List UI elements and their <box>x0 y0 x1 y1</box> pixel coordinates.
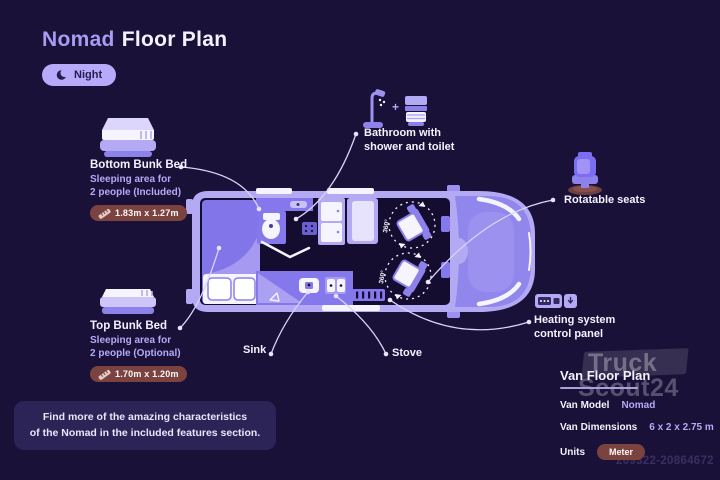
bottom-bunk-dimensions-badge: 1.83m x 1.27m <box>90 205 187 221</box>
bottom-bunk-sub1: Sleeping area for <box>90 174 171 185</box>
ruler-icon <box>98 369 111 380</box>
control-panel-icon <box>534 292 578 310</box>
bottom-bunk-dimensions: 1.83m x 1.27m <box>115 208 179 218</box>
heating-line1: Heating system <box>534 314 615 326</box>
swivel-seat-icon <box>560 150 610 196</box>
page-title-model: Nomad <box>42 28 115 51</box>
heating-line2: control panel <box>534 328 603 340</box>
page-title-rest: Floor Plan <box>122 28 228 51</box>
spec-row-dimensions: Van Dimensions 6 x 2 x 2.75 m <box>560 422 710 433</box>
cab-area <box>450 196 531 307</box>
heater-strip <box>352 289 385 301</box>
bottom-bunk-sub2: 2 people (Included) <box>90 187 181 198</box>
top-bunk-sub1: Sleeping area for <box>90 335 171 346</box>
spec-row-units: Units Meter <box>560 444 710 460</box>
info-box: Find more of the amazing characteristics… <box>14 401 276 450</box>
wardrobe-area <box>318 198 378 245</box>
sink-label: Sink <box>243 344 266 358</box>
spec-value-dimensions: 6 x 2 x 2.75 m <box>649 422 714 433</box>
bunk-bed-icon <box>96 114 160 160</box>
stove-label: Stove <box>392 347 422 361</box>
bathroom-line2: shower and toilet <box>364 141 454 153</box>
bathroom-line1: Bathroom with <box>364 127 441 139</box>
spec-underline <box>560 387 638 389</box>
ruler-icon <box>98 208 111 219</box>
toilet-icon <box>402 94 430 128</box>
van-floor-plan: 360° 360° <box>186 185 535 318</box>
top-bunk-title: Top Bunk Bed <box>90 319 220 333</box>
info-box-line2: of the Nomad in the included features se… <box>30 427 260 439</box>
top-bunk-label: Top Bunk Bed Sleeping area for 2 people … <box>90 319 220 385</box>
spec-label-units: Units <box>560 447 585 458</box>
rotatable-seats-label: Rotatable seats <box>564 194 645 208</box>
spec-row-model: Van Model Nomad <box>560 400 710 411</box>
night-mode-label: Night <box>74 69 102 81</box>
spec-panel: Van Floor Plan Van Model Nomad Van Dimen… <box>560 368 710 460</box>
bathroom-label: Bathroom with shower and toilet <box>364 127 454 154</box>
bunk-bed-icon <box>96 286 160 318</box>
shower-icon <box>360 88 390 130</box>
spec-value-model: Nomad <box>621 400 655 411</box>
unit-badge[interactable]: Meter <box>597 444 645 460</box>
bottom-bunk-label: Bottom Bunk Bed Sleeping area for 2 peop… <box>90 158 220 224</box>
top-bunk-dimensions-badge: 1.70m x 1.20m <box>90 366 187 382</box>
spec-heading: Van Floor Plan <box>560 368 710 383</box>
spec-label-dimensions: Van Dimensions <box>560 422 637 433</box>
info-box-line1: Find more of the amazing characteristics <box>43 411 247 423</box>
top-bunk-sub2: 2 people (Optional) <box>90 348 181 359</box>
plus-icon: + <box>392 100 399 114</box>
page-title: NomadFloor Plan <box>42 28 227 52</box>
stove-unit <box>325 277 346 294</box>
spec-label-model: Van Model <box>560 400 609 411</box>
heating-label: Heating system control panel <box>534 314 615 341</box>
moon-icon <box>56 69 68 81</box>
night-mode-toggle[interactable]: Night <box>42 64 116 86</box>
floor-plan-page: 360° 360° <box>0 0 720 480</box>
top-bunk-dimensions: 1.70m x 1.20m <box>115 369 179 379</box>
bottom-bunk-title: Bottom Bunk Bed <box>90 158 220 172</box>
